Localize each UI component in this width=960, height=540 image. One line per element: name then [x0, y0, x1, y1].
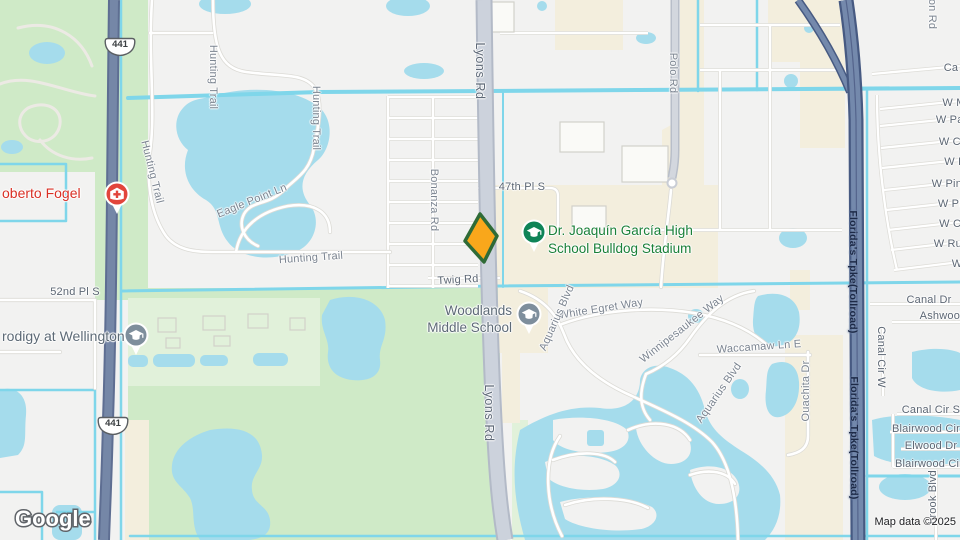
middle-school-pin[interactable] — [515, 301, 543, 340]
poi-label-high-school[interactable]: Dr. Joaquín García High School Bulldog S… — [548, 222, 693, 258]
hospital-pin[interactable] — [103, 181, 131, 220]
turnpike-label: Florida's Tpke(Tollroad) — [848, 376, 860, 499]
road-label: Canal Cir W — [875, 326, 887, 388]
road-label: Bonanza Rd — [428, 169, 440, 232]
school-pin-icon — [122, 322, 150, 356]
route-shield-441: 441 — [103, 36, 137, 57]
road-label: on Rd — [926, 0, 938, 29]
road-label: Lyons Rd — [482, 384, 496, 441]
road-label: W Pine — [932, 178, 960, 190]
hospital-pin-icon — [103, 181, 131, 215]
map-data-attribution: Map data ©2025 — [875, 516, 957, 528]
route-number: 441 — [103, 36, 137, 53]
svg-text:Google: Google — [15, 506, 91, 531]
google-logo-icon: Google — [12, 502, 108, 534]
road-label: Polo Rd — [667, 53, 679, 94]
stadium-pin[interactable] — [520, 219, 548, 258]
road-label: W — [952, 258, 960, 270]
map-viewport[interactable]: Hunting Trail Hunting Trail Hunting Trai… — [0, 0, 960, 540]
road-label: W M — [942, 97, 960, 109]
road-label: Hunting Trail — [207, 45, 219, 109]
road-label: Ashwood — [920, 310, 960, 322]
road-label: Lyons Rd — [473, 42, 487, 99]
poi-label-middle-school[interactable]: Woodlands Middle School — [427, 302, 512, 336]
selected-place-marker[interactable] — [460, 210, 500, 271]
poi-label-wellington[interactable]: rodigy at Wellington — [2, 328, 125, 344]
road-label: Blairwood Cir — [892, 423, 960, 435]
turnpike-label: Florida's Tpke(Tollroad) — [847, 210, 859, 333]
road-label: W Co — [939, 136, 960, 148]
school-pin-icon — [520, 219, 548, 253]
road-label: W P — [944, 156, 960, 168]
road-label: W Cy — [939, 218, 960, 230]
road-label: Blairwood Cir — [895, 458, 960, 470]
route-shield-441: 441 — [96, 415, 130, 436]
kite-marker-icon — [460, 210, 500, 266]
road-label: Canal Dr — [906, 294, 951, 306]
road-label: Twig Rd — [437, 273, 479, 287]
road-label: 47th Pl S — [499, 181, 545, 193]
poi-label-hospital[interactable]: oberto Fogel — [2, 185, 81, 201]
road-label: 52nd Pl S — [50, 286, 100, 298]
school-pin-icon — [515, 301, 543, 335]
road-label: Elwood Dr — [905, 440, 958, 452]
wellington-school-pin[interactable] — [122, 322, 150, 361]
pond-square — [587, 430, 604, 446]
route-number: 441 — [96, 415, 130, 432]
road-label: W Plu — [938, 198, 960, 210]
road-label: Ouachita Dr — [800, 361, 812, 422]
road-label: W Rub — [934, 238, 960, 250]
road-label: Canal Cir S — [902, 404, 960, 416]
road-label: W Pal — [936, 114, 960, 126]
road-label: Hunting Trail — [310, 86, 322, 150]
google-logo[interactable]: Google — [12, 502, 108, 539]
road-label: Ca — [944, 62, 958, 74]
